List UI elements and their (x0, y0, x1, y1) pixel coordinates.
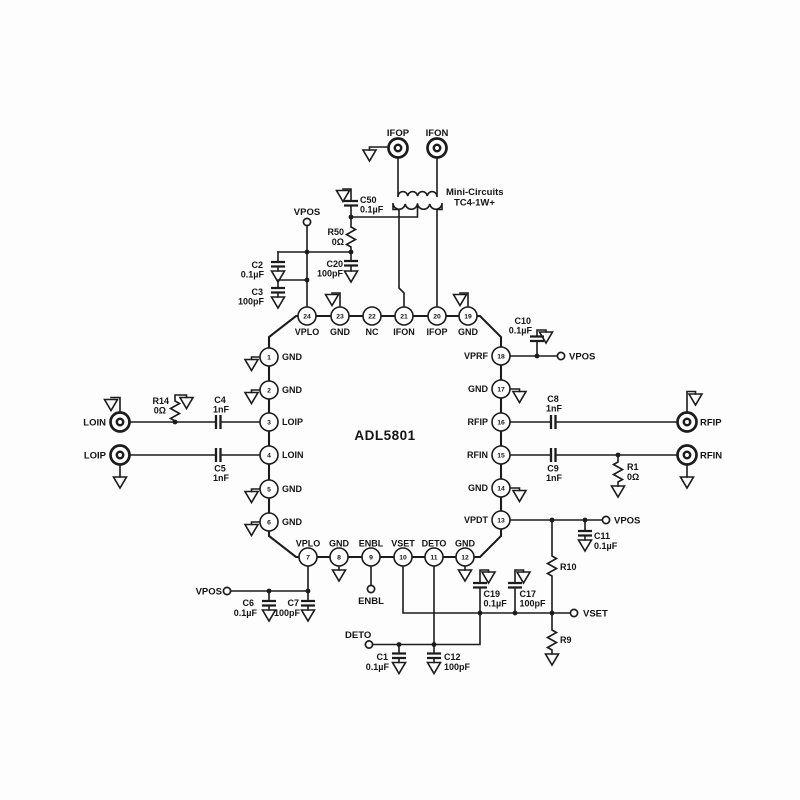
schematic-page: ADL5801 IFOP IFON Mini-Circuits TC4-1W+ … (0, 0, 800, 800)
pin-9-num: 9 (369, 555, 373, 562)
pin-6-label: GND (282, 517, 303, 527)
c12-value: 100pF (444, 662, 471, 672)
ground-icon (428, 663, 441, 674)
vplo-decoupling-section: C50 0.1µF R50 0Ω VPOS C2 0.1µF C20 100pF… (238, 189, 468, 308)
ground-icon (345, 271, 358, 282)
pin-12-label: GND (455, 539, 476, 549)
deto-terminal (365, 641, 372, 648)
c11-ref: C11 (594, 531, 610, 541)
pin-3-num: 3 (267, 420, 271, 427)
pin-1-num: 1 (267, 355, 271, 362)
res-r1 (614, 455, 623, 486)
ground-icon (454, 295, 467, 306)
c50-ref: C50 (360, 195, 377, 205)
ground-icon (513, 392, 526, 403)
vpos-terminal-top (303, 218, 310, 225)
cap-c12 (427, 654, 441, 659)
vset-terminal-label: VSET (583, 609, 608, 620)
c6-ref: C6 (242, 598, 254, 608)
ground-icon (363, 150, 376, 161)
r14-value: 0Ω (154, 406, 166, 416)
bottom-section: VPOS C6 0.1µF C7 100pF ENBL VSET C19 0.1… (196, 516, 641, 674)
c17-ref: C17 (520, 589, 537, 599)
pin-4-label: LOIN (282, 450, 304, 460)
c5-ref: C5 (214, 464, 226, 474)
pin-16-label: RFIP (467, 417, 488, 427)
secondary-to-pin21-wire (393, 204, 404, 307)
ground-icon (546, 654, 559, 665)
cap-c1 (392, 654, 406, 659)
pin-19-label: GND (458, 327, 479, 337)
pin-17-num: 17 (497, 387, 505, 394)
transformer-tc4-1w: Mini-Circuits TC4-1W+ (393, 187, 504, 209)
r50-ref: R50 (327, 227, 344, 237)
pin-24-label: VPLO (295, 327, 320, 337)
pin-16-num: 16 (497, 420, 505, 427)
if-output-section: IFOP IFON Mini-Circuits TC4-1W+ (351, 128, 504, 307)
pin-5-num: 5 (267, 487, 271, 494)
pin-21-label: IFON (393, 327, 415, 337)
ground-icon (459, 570, 472, 581)
ground-icon (245, 360, 258, 371)
c4-ref: C4 (214, 395, 226, 405)
secondary-to-pin20-wire (437, 204, 442, 307)
ground-icon (517, 572, 530, 583)
ground-icon (272, 297, 285, 308)
pin-2-num: 2 (267, 388, 271, 395)
pin-22-num: 22 (368, 314, 376, 321)
deto-wire (373, 613, 480, 645)
r14-ref: R14 (152, 396, 169, 406)
rfin-sma-center (684, 452, 690, 458)
ground-icon (681, 477, 694, 488)
ground-icon (105, 400, 118, 411)
pin-18-label: VPRF (464, 351, 489, 361)
c7-ref: C7 (287, 598, 299, 608)
c7-value: 100pF (274, 608, 301, 618)
ground-icon (245, 525, 258, 536)
cap-c6 (262, 601, 276, 606)
ground-icon (513, 491, 526, 502)
pin-19-num: 19 (464, 314, 472, 321)
pin-13-num: 13 (497, 518, 505, 525)
vpos-terminal-right-top (557, 352, 564, 359)
c1-value: 0.1µF (366, 662, 390, 672)
ground-icon (333, 570, 346, 581)
res-r50 (347, 217, 356, 252)
pin-15-num: 15 (497, 453, 505, 460)
pin-23-label: GND (330, 327, 351, 337)
pin-5-label: GND (282, 484, 303, 494)
r10-ref: R10 (560, 562, 577, 572)
c10-value: 0.1µF (509, 326, 533, 336)
deto-terminal-label: DETO (345, 630, 371, 641)
transformer-part-label: TC4-1W+ (454, 198, 495, 209)
pin-22-label: NC (366, 327, 379, 337)
transformer-primary-winding (398, 192, 437, 196)
pin-7-num: 7 (306, 555, 310, 562)
pin-20-num: 20 (433, 314, 441, 321)
vpos-terminal-label-right-top: VPOS (569, 352, 595, 363)
enbl-terminal (367, 585, 374, 592)
vpos-terminal-bottom-left (223, 587, 230, 594)
vpos-terminal-label-top: VPOS (294, 207, 320, 218)
pin-8-label: GND (329, 539, 350, 549)
ground-icon (689, 394, 702, 405)
ground-icon (114, 477, 127, 488)
lo-input-section: LOIN R14 0Ω C4 1nF LOIP C5 1nF (83, 357, 260, 536)
cap-c3 (271, 288, 285, 293)
pin-3-label: LOIP (282, 417, 303, 427)
cap-c9 (551, 448, 556, 462)
ground-icon (579, 540, 592, 551)
c20-value: 100pF (317, 269, 344, 279)
pin-8-num: 8 (337, 555, 341, 562)
if-feed-wires (398, 158, 437, 197)
pin-24-num: 24 (303, 314, 311, 321)
rf-input-section: VPOS C10 0.1µF C8 1nF RFIP C9 1nF R1 0Ω … (509, 316, 723, 502)
ground-icon (326, 295, 339, 306)
c11-value: 0.1µF (594, 541, 618, 551)
pin-9-label: ENBL (359, 539, 384, 549)
res-r10 (548, 520, 557, 613)
c19-ref: C19 (484, 589, 501, 599)
c2-ref: C2 (251, 260, 263, 270)
pin-18-num: 18 (497, 354, 505, 361)
chip-name: ADL5801 (354, 428, 415, 443)
loin-connector-label: LOIN (83, 418, 106, 429)
cap-c11 (578, 531, 592, 536)
c1-ref: C1 (376, 652, 388, 662)
ground-icon (245, 393, 258, 404)
ground-icon (482, 572, 495, 583)
vpos-terminal-label-bottom-left: VPOS (196, 587, 222, 598)
pin-20-label: IFOP (426, 327, 447, 337)
c8-ref: C8 (547, 394, 559, 404)
pin-10-label: VSET (391, 539, 415, 549)
res-r9 (548, 613, 557, 654)
pin-11-num: 11 (430, 555, 437, 562)
r50-value: 0Ω (332, 237, 344, 247)
c9-value: 1nF (546, 473, 563, 483)
pin-13-label: VPDT (464, 515, 489, 525)
ground-icon (393, 663, 406, 674)
c12-ref: C12 (444, 652, 461, 662)
vpos-terminal-bottom-right (602, 516, 609, 523)
cap-c17 (508, 583, 522, 588)
vplo-supply-wire (231, 566, 308, 591)
rfin-connector-label: RFIN (700, 451, 722, 462)
c2-value: 0.1µF (241, 270, 265, 280)
c5-value: 1nF (213, 473, 230, 483)
pin-10-num: 10 (399, 555, 407, 562)
c8-value: 1nF (546, 404, 563, 414)
c10-ref: C10 (514, 316, 531, 326)
r1-value: 0Ω (627, 472, 639, 482)
c19-value: 0.1µF (484, 599, 508, 609)
cap-c19 (473, 583, 487, 588)
res-r14 (171, 395, 187, 421)
right-gnd-hooks (511, 389, 520, 491)
ifop-sma-center (395, 145, 401, 151)
loin-sma-center (117, 419, 123, 425)
rfip-sma-center (684, 419, 690, 425)
cap-c50 (344, 201, 358, 206)
cap-c20 (344, 261, 358, 266)
pin-7-label: VPLO (296, 539, 321, 549)
cap-c7 (301, 601, 315, 606)
pin-21-num: 21 (400, 314, 408, 321)
pin-15-label: RFIN (467, 450, 488, 460)
loip-connector-label: LOIP (84, 451, 107, 462)
adl5801-eval-schematic: ADL5801 IFOP IFON Mini-Circuits TC4-1W+ … (0, 0, 800, 800)
c4-value: 1nF (213, 405, 230, 415)
pin-6-num: 6 (267, 520, 271, 527)
vset-terminal (570, 609, 577, 616)
pin-23-num: 23 (336, 314, 344, 321)
pin-12-num: 12 (461, 555, 469, 562)
cap-c8 (551, 415, 556, 429)
vpos-terminal-label-bottom-right: VPOS (614, 516, 640, 527)
pin-4-num: 4 (267, 453, 271, 460)
rfip-connector-label: RFIP (700, 418, 722, 429)
c17-value: 100pF (520, 599, 547, 609)
ground-icon (245, 492, 258, 503)
pin-17-label: GND (468, 384, 489, 394)
enbl-terminal-label: ENBL (358, 596, 384, 607)
cap-c2 (271, 262, 285, 267)
c3-value: 100pF (238, 297, 265, 307)
loip-sma-center (117, 452, 123, 458)
pin-1-label: GND (282, 352, 303, 362)
transformer-vendor-label: Mini-Circuits (446, 187, 504, 198)
c9-ref: C9 (547, 464, 559, 474)
ifon-sma-center (434, 145, 440, 151)
r9-ref: R9 (560, 635, 572, 645)
ground-icon (612, 486, 625, 497)
pin-2-label: GND (282, 385, 303, 395)
pin-11-label: DETO (422, 539, 447, 549)
pin-14-label: GND (468, 483, 489, 493)
pin-14-num: 14 (497, 486, 505, 493)
ground-icon (302, 610, 315, 621)
r1-ref: R1 (627, 462, 639, 472)
c20-ref: C20 (326, 259, 343, 269)
c3-ref: C3 (251, 287, 263, 297)
c6-value: 0.1µF (234, 608, 258, 618)
ground-icon (180, 398, 193, 409)
c50-value: 0.1µF (360, 205, 384, 215)
